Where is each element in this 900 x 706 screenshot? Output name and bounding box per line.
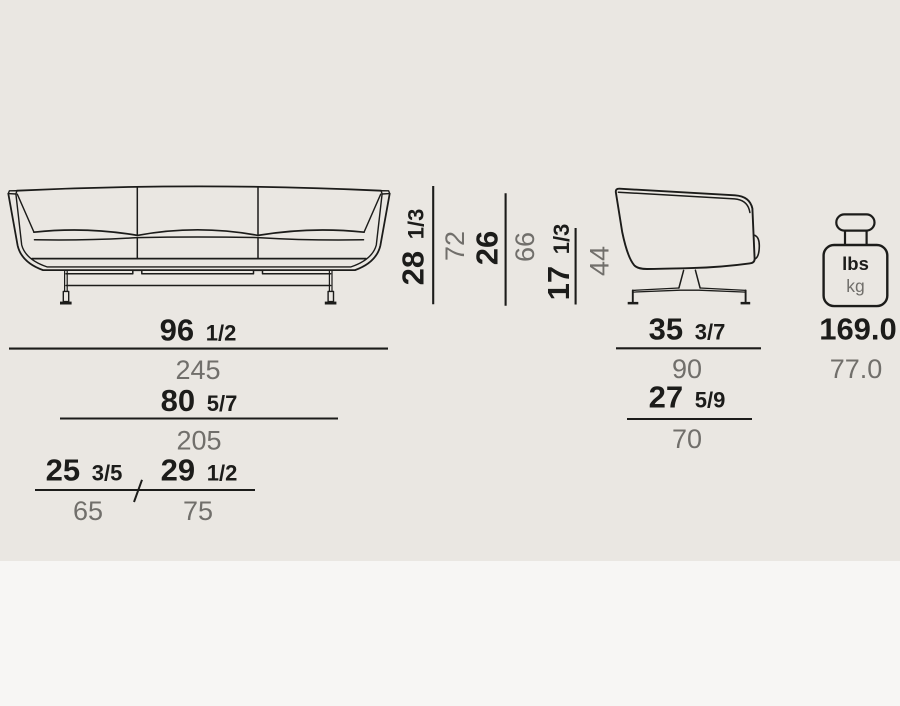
svg-text:245: 245 [175,355,220,385]
svg-text:65: 65 [73,496,103,526]
svg-text:44: 44 [585,246,615,276]
svg-text:lbs: lbs [842,253,869,274]
svg-text:66: 66 [510,232,540,262]
svg-text:72: 72 [440,231,470,261]
svg-text:169.0: 169.0 [819,312,897,347]
svg-text:kg: kg [846,276,864,296]
svg-text:75: 75 [183,496,213,526]
svg-text:205: 205 [176,426,221,456]
svg-text:26: 26 [469,231,504,265]
svg-text:77.0: 77.0 [830,354,883,384]
svg-text:70: 70 [672,424,702,454]
